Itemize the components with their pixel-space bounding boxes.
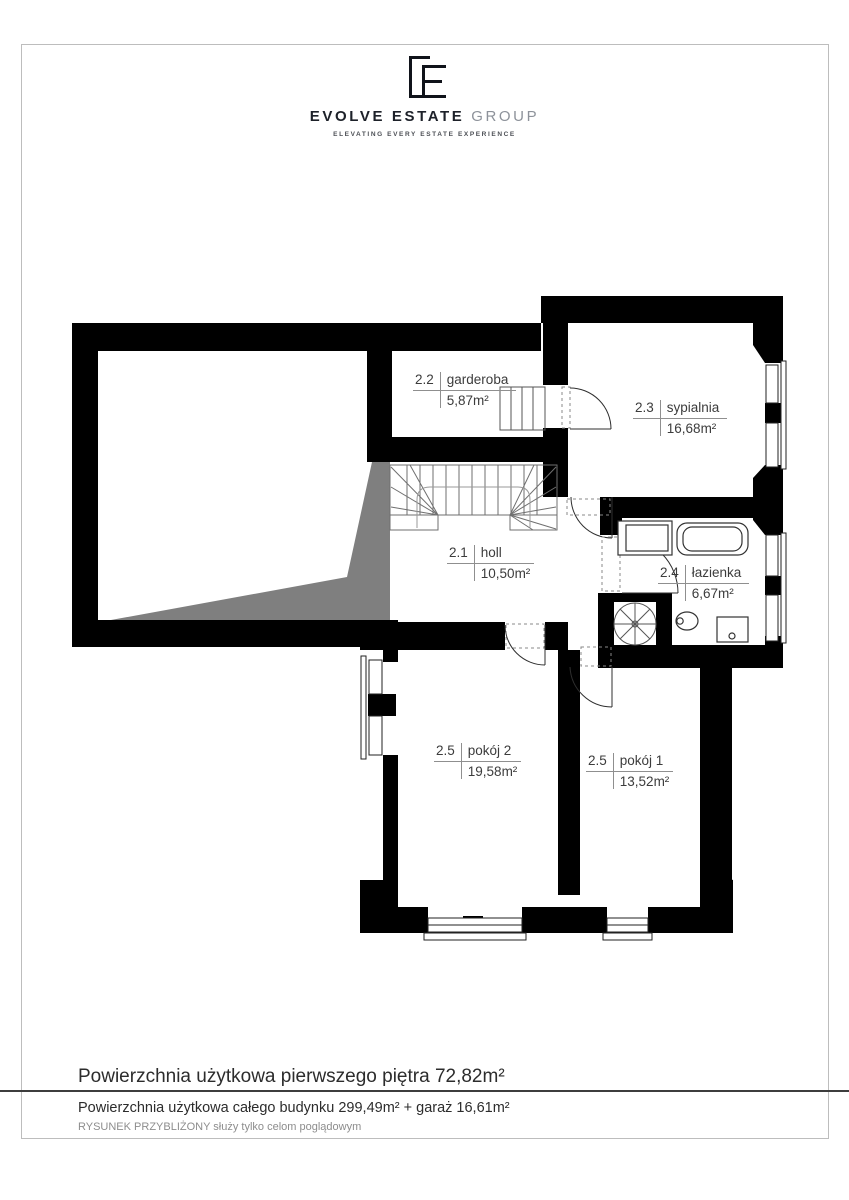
room-name: garderoba — [441, 372, 517, 391]
door-arc — [570, 388, 611, 429]
room-number: 2.2 — [413, 372, 440, 391]
spiral-stairs — [614, 603, 656, 645]
room-name: pokój 1 — [614, 753, 674, 772]
room-number: 2.3 — [633, 400, 660, 419]
room-name: łazienka — [686, 565, 750, 584]
void-shadow — [100, 462, 390, 622]
main-stairs — [390, 465, 557, 530]
disclaimer-text: RYSUNEK PRZYBLIŻONY służy tylko celom po… — [78, 1121, 361, 1133]
room-number: 2.5 — [434, 743, 461, 762]
footer-divider — [0, 1090, 849, 1092]
room-number: 2.1 — [447, 545, 474, 564]
room-label-sypialnia: 2.3 sypialnia 16,68m² — [633, 400, 727, 436]
room-area: 10,50m² — [475, 564, 535, 582]
room-area: 19,58m² — [462, 762, 522, 780]
room-label-pokoj-2: 2.5 pokój 2 19,58m² — [434, 743, 521, 779]
room-label-lazienka: 2.4 łazienka 6,67m² — [658, 565, 749, 601]
room-area: 6,67m² — [686, 584, 750, 602]
building-area-summary: Powierzchnia użytkowa całego budynku 299… — [78, 1100, 510, 1116]
room-number: 2.4 — [658, 565, 685, 584]
room-area: 13,52m² — [614, 772, 674, 790]
room-label-pokoj-1: 2.5 pokój 1 13,52m² — [586, 753, 673, 789]
room-label-garderoba: 2.2 garderoba 5,87m² — [413, 372, 516, 408]
bathtub — [677, 523, 748, 555]
room-number: 2.5 — [586, 753, 613, 772]
room-label-holl: 2.1 holl 10,50m² — [447, 545, 534, 581]
room-area: 16,68m² — [661, 419, 728, 437]
room-name: holl — [475, 545, 535, 564]
washing-machine — [618, 521, 672, 555]
toilet — [676, 612, 698, 630]
room-name: sypialnia — [661, 400, 728, 419]
floor-area-summary: Powierzchnia użytkowa pierwszego piętra … — [78, 1066, 505, 1088]
page: EVOLVE ESTATE GROUP ELEVATING EVERY ESTA… — [0, 0, 849, 1200]
room-name: pokój 2 — [462, 743, 522, 762]
sink — [717, 617, 748, 642]
door-arc — [505, 625, 545, 665]
room-area: 5,87m² — [441, 391, 517, 409]
